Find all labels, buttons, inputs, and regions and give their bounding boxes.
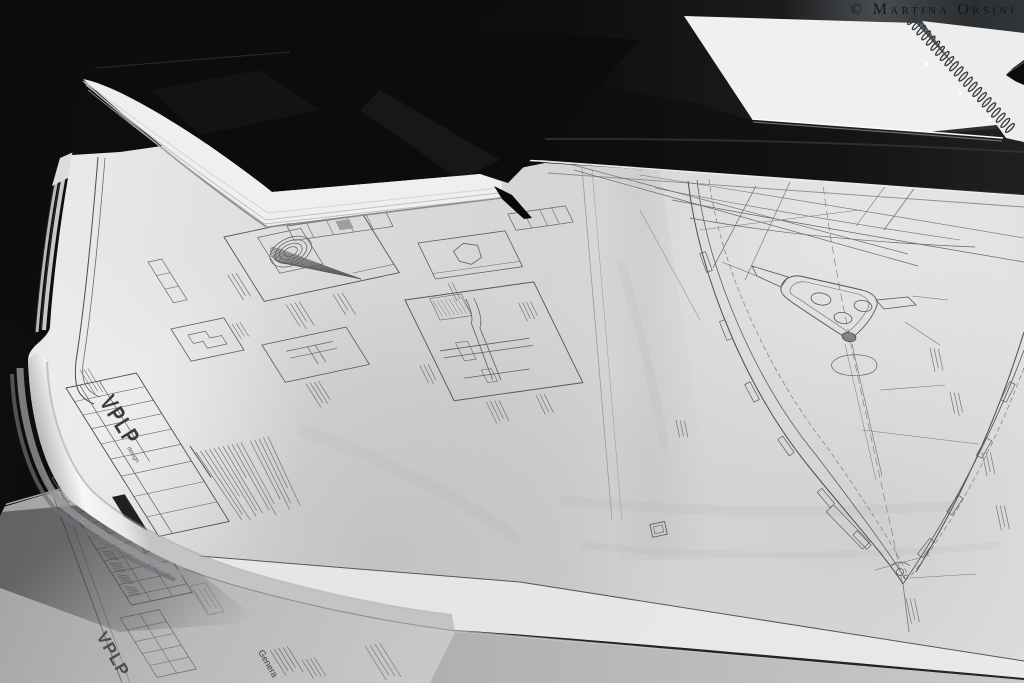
svg-text:© Martina Orsini: © Martina Orsini bbox=[850, 1, 1017, 18]
